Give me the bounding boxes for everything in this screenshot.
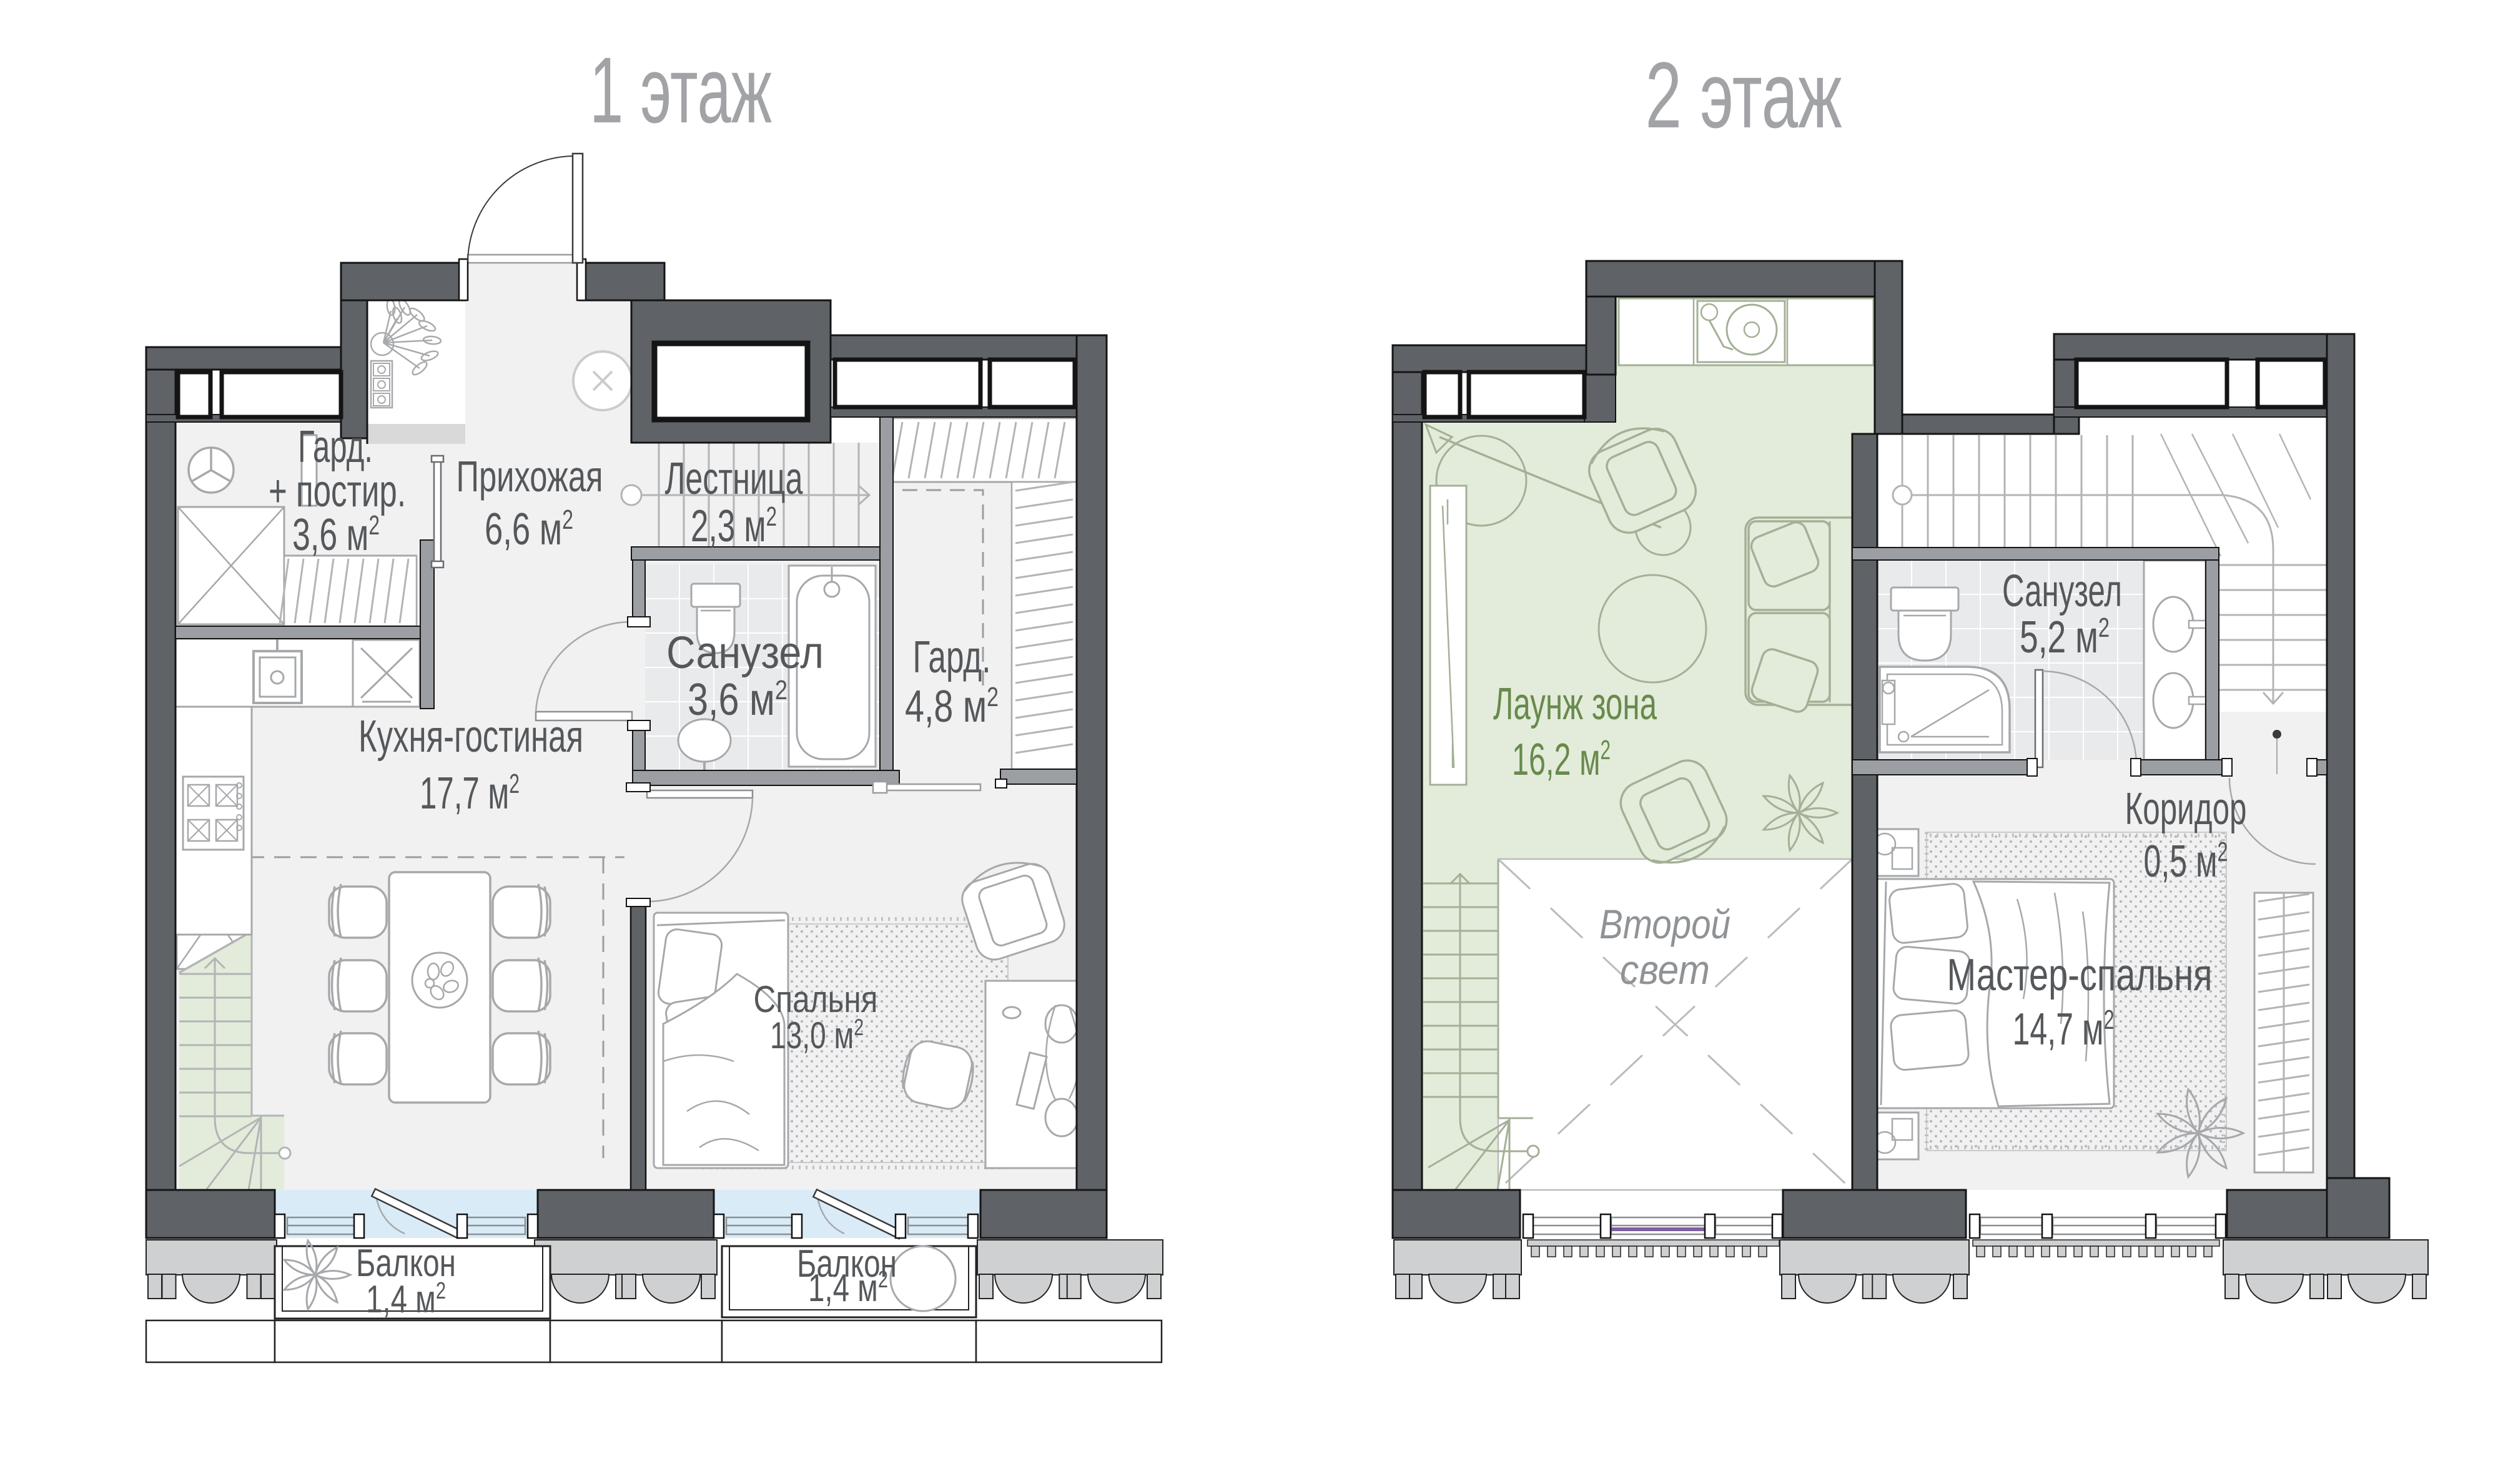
svg-text:Лаунж зона: Лаунж зона [1493, 679, 1657, 729]
svg-text:5,2 м2: 5,2 м2 [2020, 612, 2110, 662]
svg-text:4,8 м2: 4,8 м2 [905, 682, 999, 732]
svg-text:1,4 м2: 1,4 м2 [808, 1267, 888, 1310]
svg-text:Лестница: Лестница [665, 454, 804, 504]
svg-text:Санузел: Санузел [2002, 566, 2122, 616]
svg-text:+ постир.: + постир. [269, 466, 406, 516]
svg-text:Гард.: Гард. [298, 422, 373, 472]
svg-text:0,5 м2: 0,5 м2 [2144, 837, 2228, 887]
svg-text:свет: свет [1620, 946, 1710, 993]
svg-text:17,7 м2: 17,7 м2 [420, 769, 520, 818]
svg-text:Прихожая: Прихожая [457, 452, 603, 501]
svg-text:13,0 м2: 13,0 м2 [770, 1015, 864, 1056]
svg-text:Мастер-спальня: Мастер-спальня [1947, 950, 2213, 1000]
svg-text:Санузел: Санузел [666, 628, 824, 678]
svg-text:16,2 м2: 16,2 м2 [1512, 735, 1611, 785]
svg-text:1,4 м2: 1,4 м2 [366, 1278, 446, 1321]
svg-text:6,6 м2: 6,6 м2 [485, 504, 573, 554]
svg-text:3,6 м2: 3,6 м2 [688, 675, 787, 725]
svg-text:Спальня: Спальня [754, 978, 878, 1020]
svg-text:2 этаж: 2 этаж [1646, 42, 1842, 147]
svg-text:Коридор: Коридор [2125, 784, 2247, 834]
svg-text:Гард.: Гард. [913, 632, 991, 682]
svg-text:14,7 м2: 14,7 м2 [2013, 1005, 2115, 1054]
svg-text:3,6 м2: 3,6 м2 [292, 510, 380, 560]
svg-text:1 этаж: 1 этаж [590, 37, 772, 142]
svg-text:Второй: Второй [1599, 901, 1730, 947]
svg-text:Кухня-гостиная: Кухня-гостиная [358, 712, 583, 762]
svg-text:2,3 м2: 2,3 м2 [691, 501, 777, 551]
